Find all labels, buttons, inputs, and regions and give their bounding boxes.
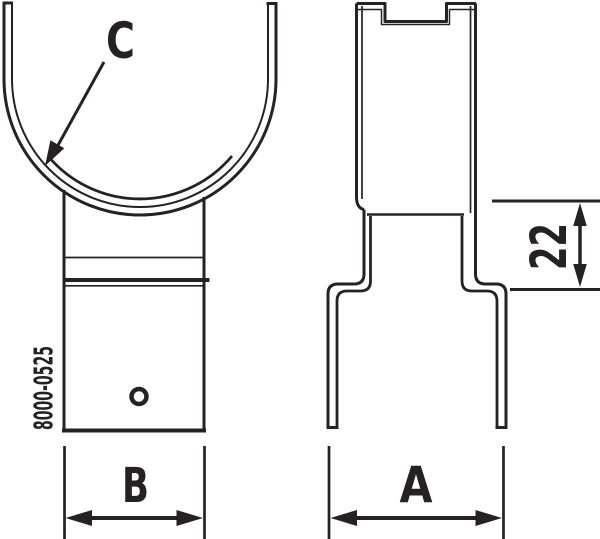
dimension-b-label: B bbox=[122, 458, 149, 514]
mounting-hole bbox=[132, 389, 147, 404]
right-leg-outer bbox=[476, 4, 507, 427]
dimension-22-label: 22 bbox=[520, 223, 578, 270]
saddle-outer-contour bbox=[4, 2, 276, 215]
dimension-a: A bbox=[329, 446, 504, 539]
dimension-c: C bbox=[45, 12, 135, 166]
left-leg-outer bbox=[328, 210, 364, 427]
saddle-wall-caps bbox=[3, 3, 278, 4]
dim22-arrowhead-up bbox=[573, 203, 587, 226]
right-leg-inner bbox=[462, 216, 497, 426]
dimension-c-label: C bbox=[106, 12, 135, 70]
side-view bbox=[327, 4, 508, 428]
technical-drawing-canvas: 8000-0525 C 22 bbox=[0, 0, 600, 539]
dimension-b: B bbox=[65, 446, 205, 539]
top-edge-with-notch bbox=[357, 4, 477, 22]
left-saddle-wall bbox=[357, 4, 365, 210]
saddle-wall-inner-lines bbox=[362, 6, 471, 213]
dimb-arrowhead-right bbox=[177, 510, 204, 526]
pipe-clamp-drawing: 8000-0525 C 22 bbox=[0, 0, 600, 539]
dimb-arrowhead-left bbox=[66, 510, 93, 526]
dima-arrowhead-left bbox=[331, 510, 358, 526]
dimension-a-label: A bbox=[400, 456, 433, 514]
saddle-back-edge-arc bbox=[48, 156, 232, 199]
part-number-label: 8000-0525 bbox=[30, 346, 60, 430]
front-view: 8000-0525 bbox=[3, 2, 278, 431]
dima-arrowhead-right bbox=[476, 510, 503, 526]
dimension-22: 22 bbox=[492, 201, 600, 290]
saddle-inner-contour bbox=[12, 2, 268, 207]
c-leader-line bbox=[57, 62, 104, 147]
